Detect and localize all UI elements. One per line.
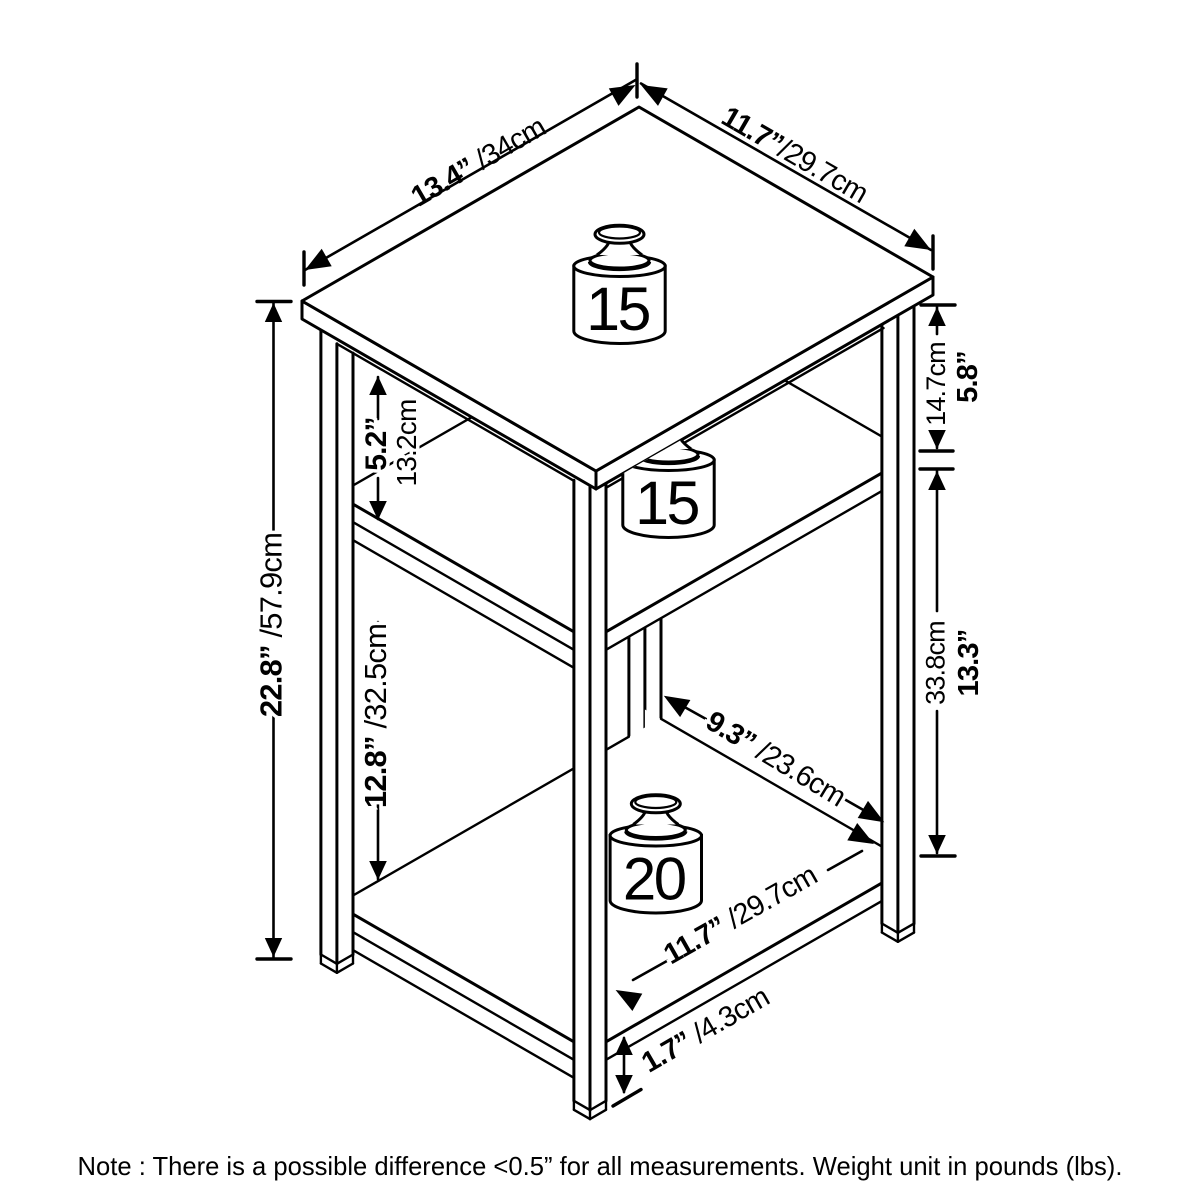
svg-text:12.8” /32.5cm: 12.8” /32.5cm: [358, 624, 393, 808]
svg-text:13.2cm: 13.2cm: [391, 399, 422, 486]
svg-text:33.8cm: 33.8cm: [921, 621, 951, 705]
svg-text:5.8”: 5.8”: [952, 351, 984, 403]
svg-text:Note : There is a possible dif: Note : There is a possible difference <0…: [78, 1153, 1123, 1181]
svg-text:22.8” /57.9cm: 22.8” /57.9cm: [254, 533, 289, 717]
svg-text:15: 15: [586, 275, 649, 343]
svg-text:14.7cm: 14.7cm: [921, 342, 951, 426]
svg-text:13.3”: 13.3”: [953, 630, 985, 697]
svg-text:15: 15: [635, 469, 698, 537]
svg-text:5.2”: 5.2”: [360, 417, 393, 471]
svg-text:20: 20: [623, 846, 686, 913]
